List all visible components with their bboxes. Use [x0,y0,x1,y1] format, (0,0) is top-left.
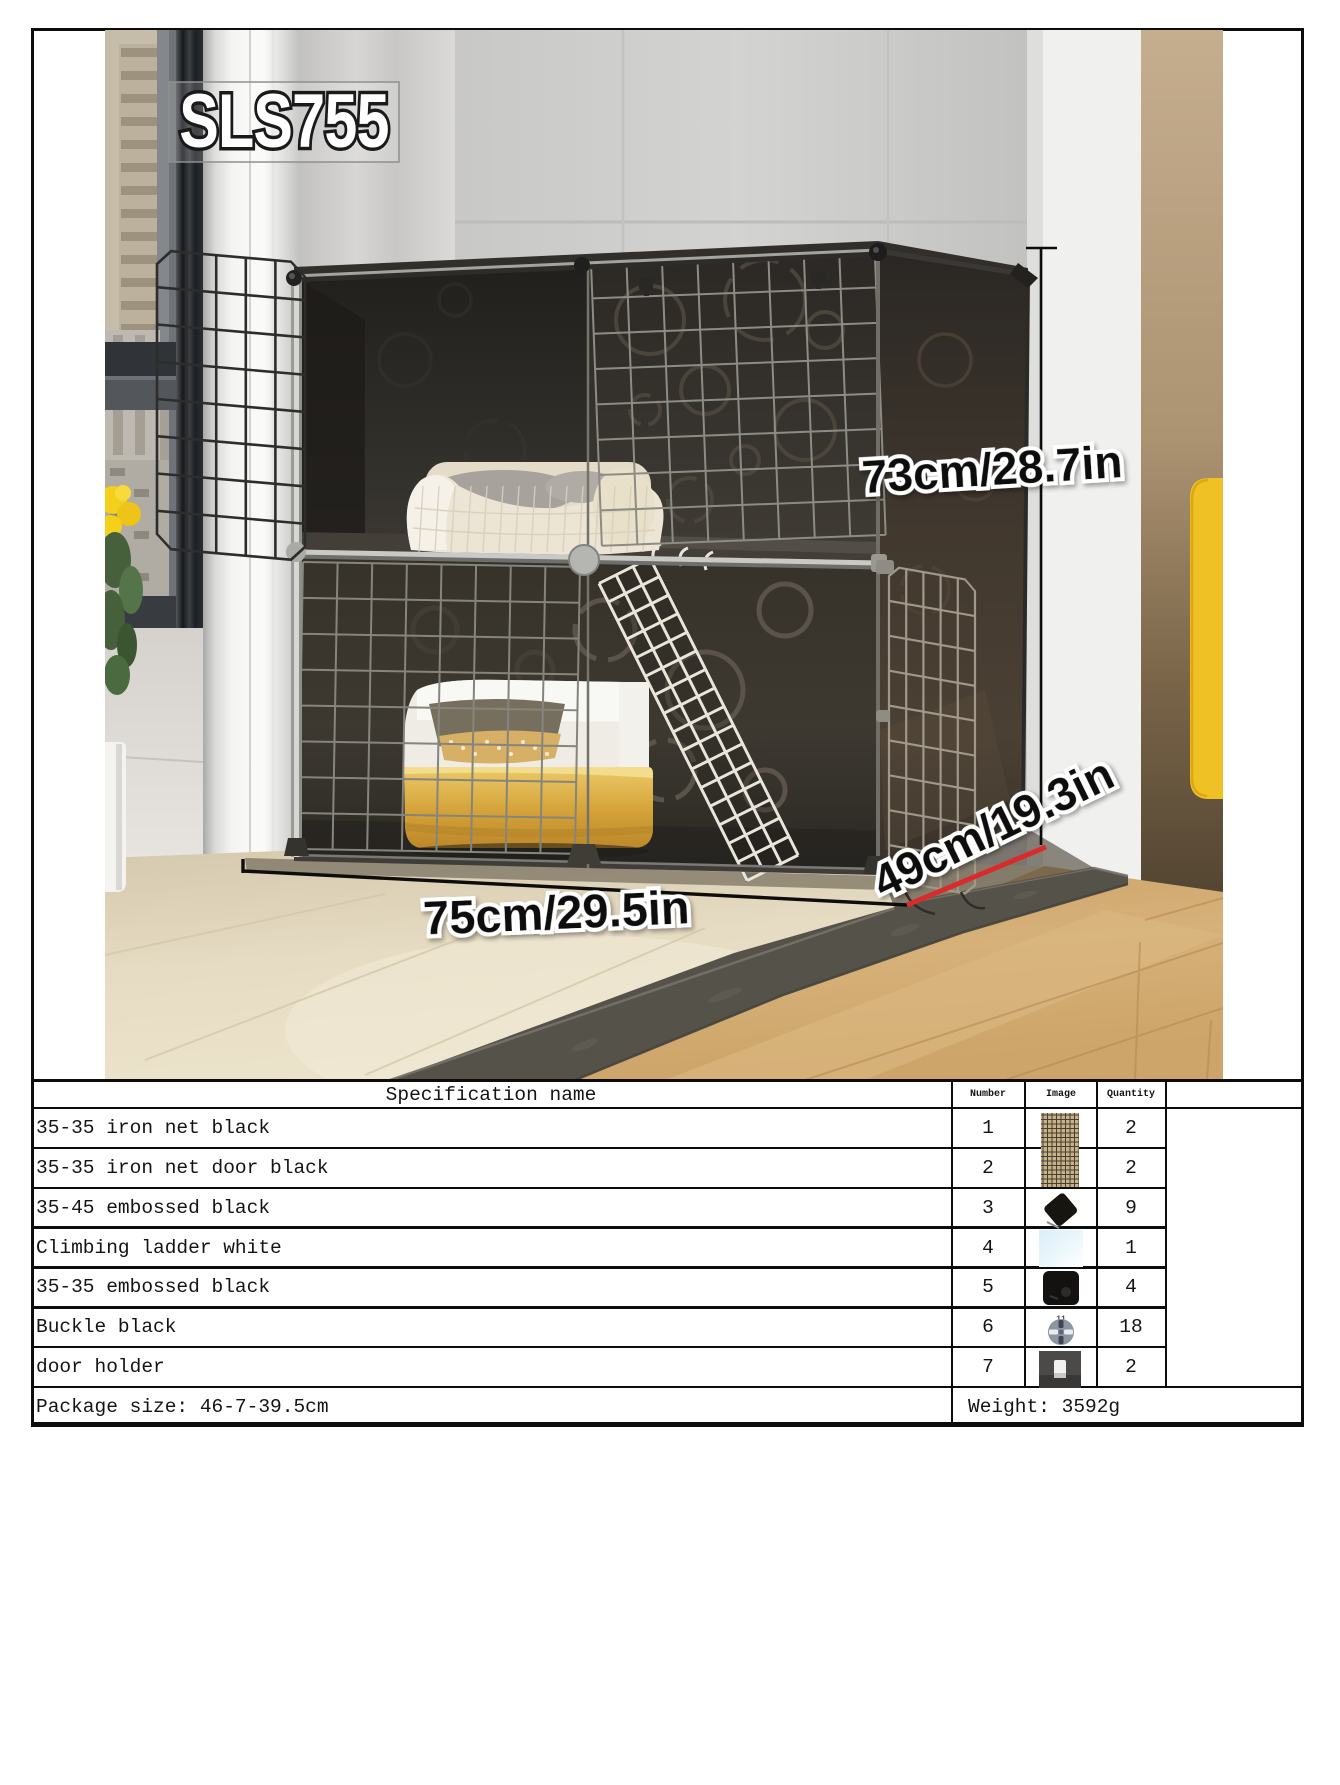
svg-text:SLS755: SLS755 [179,79,388,164]
